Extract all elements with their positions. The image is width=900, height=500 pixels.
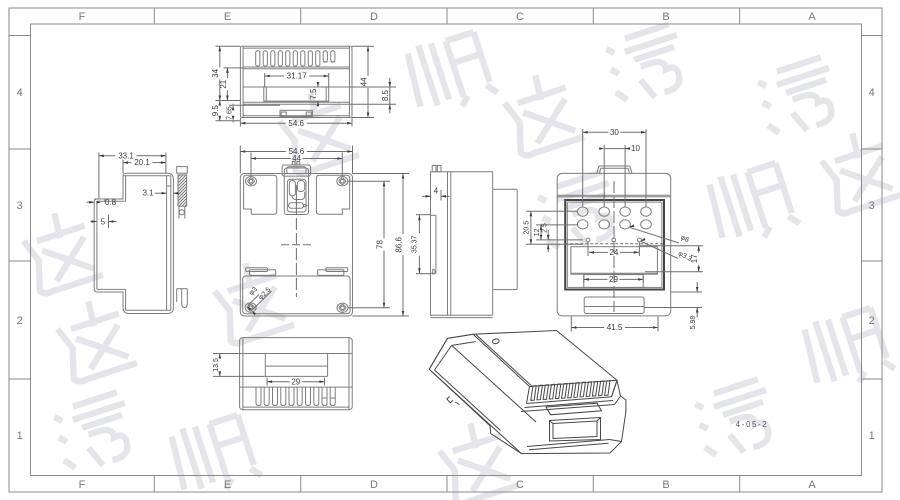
svg-text:5.98: 5.98 (690, 316, 697, 330)
svg-text:24: 24 (609, 248, 618, 257)
svg-text:2: 2 (869, 315, 875, 327)
svg-text:1: 1 (869, 430, 875, 442)
svg-text:30: 30 (610, 128, 619, 137)
svg-text:A: A (808, 479, 816, 491)
svg-text:33.1: 33.1 (118, 151, 134, 160)
svg-text:44: 44 (292, 154, 301, 163)
svg-text:2.5: 2.5 (541, 223, 548, 233)
svg-text:F: F (79, 479, 86, 491)
svg-text:20.1: 20.1 (134, 158, 150, 167)
svg-text:0.8: 0.8 (105, 198, 117, 207)
svg-text:31.17: 31.17 (287, 72, 308, 81)
svg-text:9.5: 9.5 (211, 105, 220, 117)
svg-text:D: D (370, 11, 378, 23)
svg-text:2: 2 (17, 315, 23, 327)
svg-text:20.5: 20.5 (524, 221, 531, 235)
svg-text:4: 4 (869, 87, 875, 99)
svg-text:7.5: 7.5 (309, 88, 318, 100)
svg-text:A: A (808, 11, 816, 23)
svg-text:3: 3 (869, 200, 875, 212)
svg-text:78: 78 (375, 240, 384, 249)
svg-text:D: D (370, 479, 378, 491)
svg-text:B: B (662, 479, 669, 491)
svg-text:3.1: 3.1 (142, 189, 154, 198)
svg-text:C: C (516, 479, 524, 491)
svg-text:21: 21 (219, 79, 228, 88)
svg-text:4-05-2: 4-05-2 (736, 420, 769, 429)
svg-text:29: 29 (291, 377, 300, 386)
svg-text:41.5: 41.5 (607, 323, 623, 332)
svg-text:E: E (224, 11, 231, 23)
svg-text:44: 44 (359, 77, 368, 86)
svg-text:C: C (516, 11, 524, 23)
svg-text:35.37: 35.37 (411, 235, 418, 253)
svg-text:29: 29 (609, 275, 618, 284)
svg-text:1: 1 (17, 430, 23, 442)
svg-text:E: E (224, 479, 231, 491)
svg-text:5: 5 (101, 217, 106, 226)
svg-text:8.5: 8.5 (381, 89, 390, 101)
svg-text:10: 10 (631, 144, 640, 153)
svg-text:54.6: 54.6 (288, 119, 304, 128)
svg-text:34: 34 (211, 68, 220, 77)
svg-text:13.5: 13.5 (213, 358, 220, 372)
svg-text:B: B (662, 11, 669, 23)
svg-text:4: 4 (17, 87, 23, 99)
svg-text:86.6: 86.6 (394, 236, 403, 252)
svg-text:4: 4 (434, 187, 439, 196)
svg-text:3: 3 (17, 200, 23, 212)
svg-text:F: F (79, 11, 86, 23)
svg-text:7.65: 7.65 (227, 106, 234, 120)
svg-text:12: 12 (534, 228, 541, 236)
